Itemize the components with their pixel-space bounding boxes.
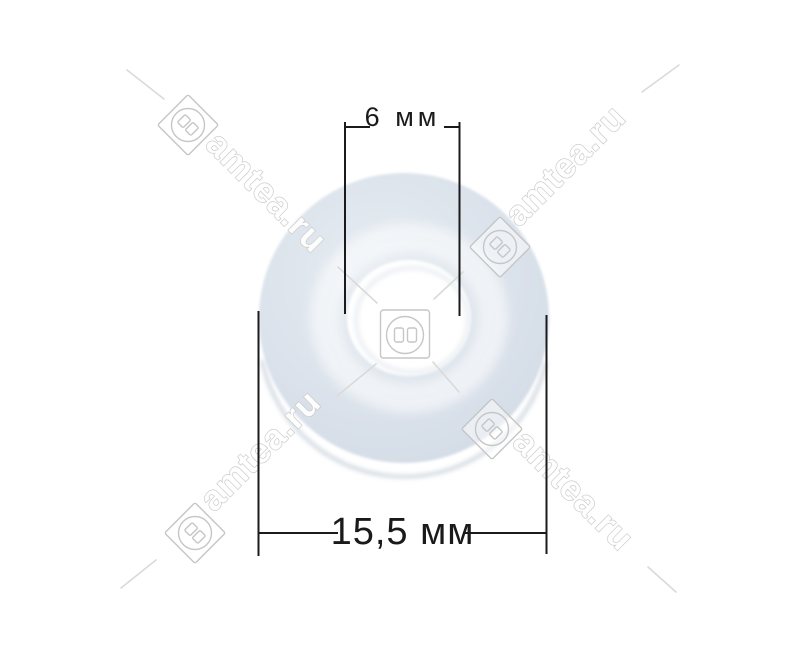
power-socket-icon-center [381, 310, 430, 358]
watermark-diagonal-line [121, 560, 156, 588]
watermark-diagonal-line [648, 567, 676, 592]
washer-illustration: amtea.ru amtea.ru amtea.ru amtea.ru [0, 0, 800, 663]
watermark-text: amtea.ru [497, 97, 633, 233]
inner-diameter-label: 6 мм [345, 104, 460, 131]
product-photo: amtea.ru amtea.ru amtea.ru amtea.ru 6 мм… [0, 0, 800, 663]
outer-diameter-label: 15,5 мм [258, 513, 547, 551]
watermark-diagonal-line [642, 65, 679, 92]
watermark-text: amtea.ru [192, 382, 328, 518]
watermark-text: amtea.ru [198, 124, 334, 260]
watermark-diagonal-line [127, 70, 164, 99]
